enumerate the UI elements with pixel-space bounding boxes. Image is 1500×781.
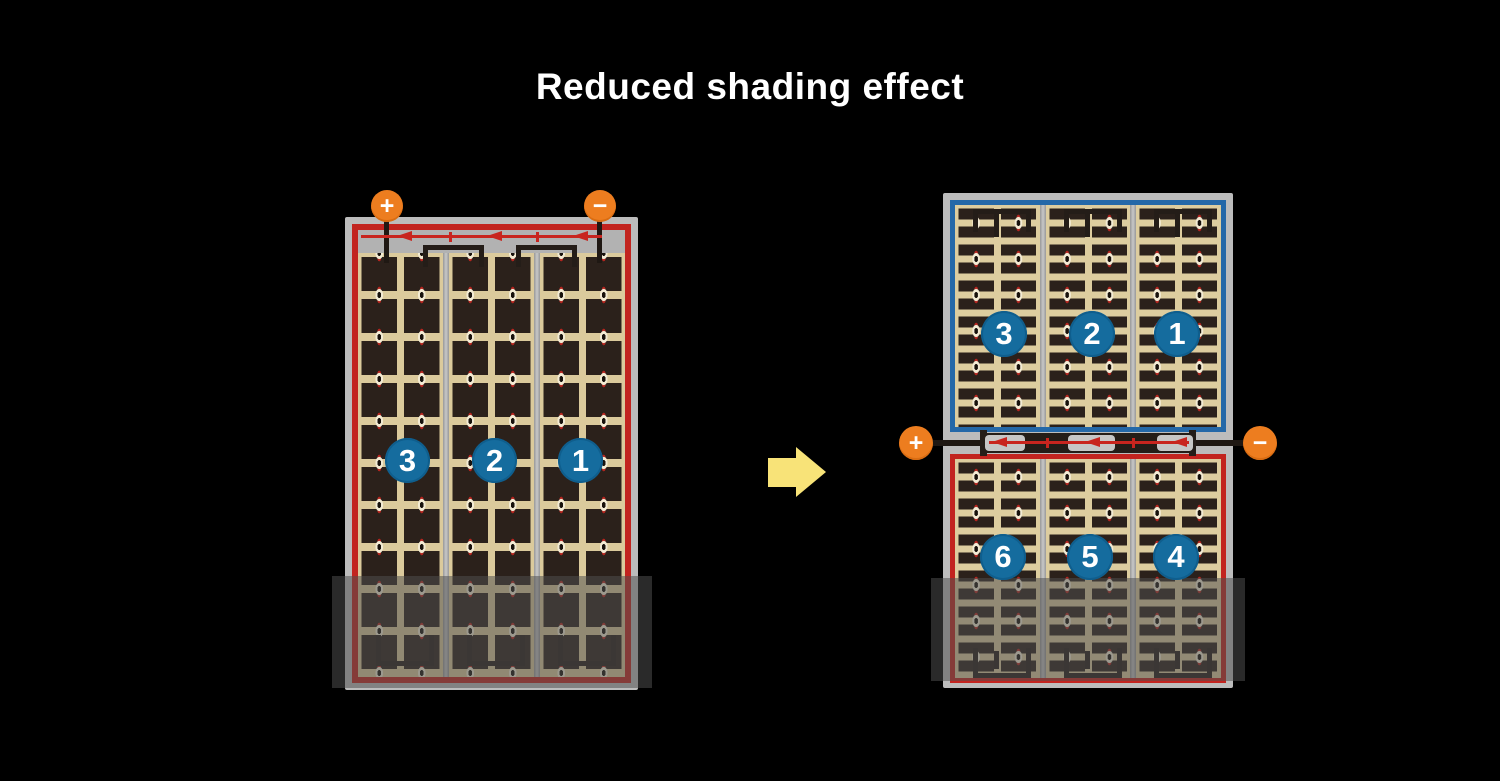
top-busbar-bridge [516, 245, 577, 267]
top-busbar-bridge [1154, 209, 1212, 232]
shading-overlay [931, 578, 1245, 681]
right-arrow-icon [768, 458, 796, 487]
diode-tick [1046, 438, 1049, 448]
string-number-badge: 2 [472, 438, 517, 483]
right-solar-panel: 3 2 1 6 5 4 + − [943, 193, 1233, 688]
diode-arrow-icon [487, 231, 502, 241]
top-busbar-bridge [423, 245, 484, 267]
string-number-badge: 4 [1153, 534, 1199, 580]
right-arrow-icon [796, 447, 826, 497]
diode-arrow-icon [1085, 437, 1100, 447]
string-number-badge: 3 [981, 311, 1027, 357]
diode-tick [1132, 438, 1135, 448]
positive-lead-wire [925, 440, 981, 446]
negative-terminal-icon: − [1243, 426, 1277, 460]
string-number-badge: 1 [558, 438, 603, 483]
junction-box [985, 433, 1193, 453]
string-number-badge: 6 [980, 534, 1026, 580]
top-busbar-bridge [973, 209, 1031, 232]
string-number-badge: 3 [385, 438, 430, 483]
string-number-badge: 2 [1069, 311, 1115, 357]
diagram-title: Reduced shading effect [0, 66, 1500, 108]
diode-arrow-icon [1172, 437, 1187, 447]
diode-arrow-icon [573, 231, 588, 241]
top-busbar-bridge [1064, 209, 1122, 232]
positive-terminal-icon: + [371, 190, 403, 222]
busbar-stub [1175, 209, 1180, 237]
negative-terminal-icon: − [584, 190, 616, 222]
diode-tick [536, 232, 539, 242]
left-solar-panel: 3 2 1 + − [345, 217, 638, 690]
busbar-stub [994, 209, 999, 237]
diode-tick [449, 232, 452, 242]
diagram-canvas: Reduced shading effect 3 2 1 [0, 0, 1500, 781]
shading-overlay [332, 576, 652, 688]
busbar-stub [1085, 209, 1090, 237]
string-number-badge: 5 [1067, 534, 1113, 580]
diode-arrow-icon [992, 437, 1007, 447]
string-number-badge: 1 [1154, 311, 1200, 357]
positive-terminal-icon: + [899, 426, 933, 460]
diode-arrow-icon [397, 231, 412, 241]
